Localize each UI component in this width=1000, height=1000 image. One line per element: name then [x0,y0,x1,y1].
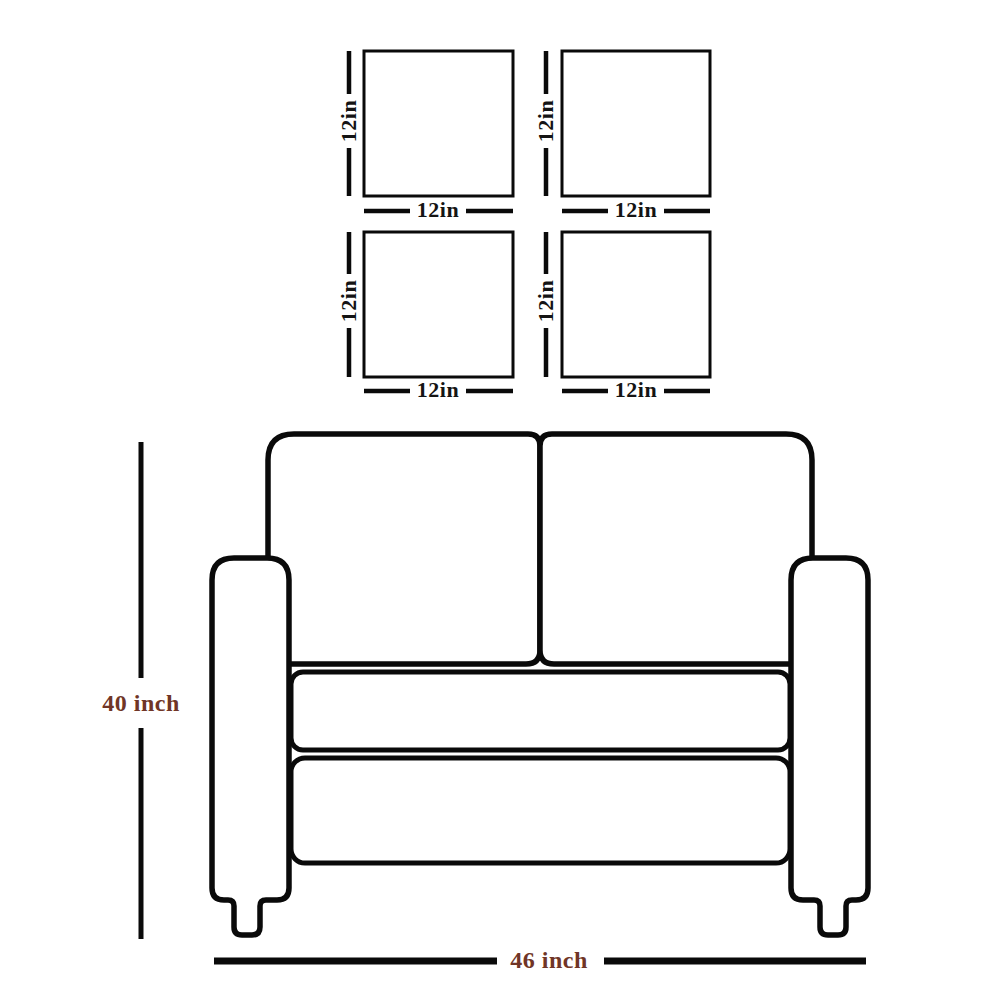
diagram-artwork [0,0,1000,1000]
pillow-width-label: 12in [615,199,657,221]
pillow-top-right [546,51,710,211]
pillow-width-label: 12in [417,199,459,221]
sofa-height-label: 40 inch [102,691,180,715]
dimension-diagram: 12in 12in 12in 12in 12in 12in 12in 12in … [0,0,1000,1000]
back-cushion-left [268,434,540,664]
pillow-width-label: 12in [417,379,459,401]
pillow-square [364,232,513,377]
sofa-width-label: 46 inch [510,948,588,972]
pillow-top-left [349,51,513,211]
pillow-height-label: 12in [338,100,360,142]
back-cushion-right [540,434,812,664]
pillow-bottom-right [546,232,710,391]
pillow-bottom-left [349,232,513,391]
pillow-square [364,51,513,196]
pillow-width-label: 12in [615,379,657,401]
armrest-right [791,558,868,935]
pillow-height-label: 12in [535,100,557,142]
pillow-square [562,51,710,196]
pillow-height-label: 12in [338,280,360,322]
seat-cushion-panel [291,672,790,750]
pillow-square [562,232,710,377]
loveseat-illustration [212,434,868,935]
base-panel [291,758,790,863]
pillow-height-label: 12in [535,280,557,322]
armrest-left [212,558,289,935]
